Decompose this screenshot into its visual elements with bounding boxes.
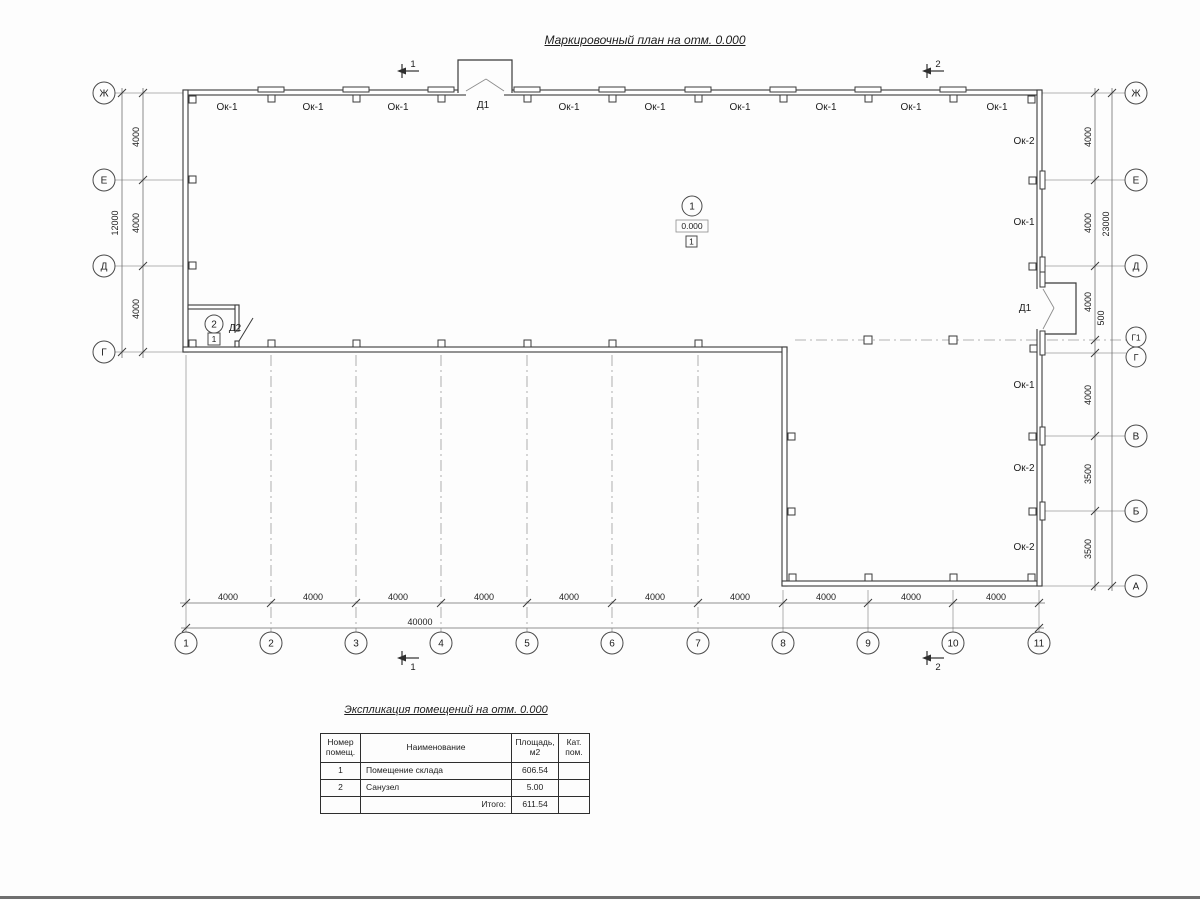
window-label: Ок-1 [387, 102, 408, 113]
axis-label: 11 [1034, 639, 1045, 650]
dim-label: 4000 [730, 592, 750, 602]
cell-area: 606.54 [512, 763, 559, 780]
total-area: 611.54 [512, 797, 559, 814]
axis-label: Г [101, 348, 107, 359]
axis-label: В [1133, 432, 1140, 443]
table-header-row: Номер помещ. Наименование Площадь, м2 Ка… [321, 734, 590, 763]
col-header-area: Площадь, м2 [512, 734, 559, 763]
room-marker-storage: 1 0.000 1 [676, 196, 708, 247]
cell-empty [559, 797, 590, 814]
axis-label: Ж [99, 89, 109, 100]
section-number: 1 [410, 662, 415, 673]
cell-number: 2 [321, 780, 361, 797]
dim-label: 4000 [1083, 385, 1093, 405]
axis-label: Б [1133, 507, 1140, 518]
dim-label: 4000 [131, 299, 141, 319]
section-mark-1-top [397, 64, 419, 78]
dimension-labels: 4000 4000 4000 12000 4000 4000 4000 500 … [110, 127, 1111, 627]
room-schedule-table: Номер помещ. Наименование Площадь, м2 Ка… [320, 733, 590, 814]
dim-label: 4000 [901, 592, 921, 602]
dim-label: 4000 [474, 592, 494, 602]
col-header-name: Наименование [361, 734, 512, 763]
axis-label: Г1 [1131, 333, 1141, 343]
axis-label: 8 [780, 639, 786, 650]
dim-label: 4000 [131, 127, 141, 147]
dim-label: 3500 [1083, 539, 1093, 559]
door-openings [466, 89, 1043, 329]
table-total-row: Итого: 611.54 [321, 797, 590, 814]
door-label: Д1 [477, 100, 490, 111]
dim-label-total: 40000 [407, 617, 432, 627]
dim-label-total: 23000 [1101, 211, 1111, 236]
dim-label: 4000 [131, 213, 141, 233]
window-label: Ок-1 [1013, 380, 1034, 391]
axis-label: 9 [865, 639, 871, 650]
table-title: Экспликация помещений на отм. 0.000 [318, 704, 574, 716]
door-label: Д1 [1019, 303, 1032, 314]
axis-label: 1 [183, 639, 189, 650]
dim-label: 4000 [218, 592, 238, 602]
axis-grid-lines [115, 93, 1126, 632]
dim-label: 4000 [816, 592, 836, 602]
dim-label-total: 12000 [110, 210, 120, 235]
axis-label: 7 [695, 639, 701, 650]
window-label: Ок-2 [1013, 136, 1034, 147]
section-mark-2-top [922, 64, 944, 78]
room-marker-wc: 2 1 [205, 315, 223, 345]
cell-empty [321, 797, 361, 814]
axis-label: 6 [609, 639, 615, 650]
room-number: 1 [689, 202, 695, 213]
section-marks [397, 64, 944, 665]
section-number: 1 [410, 59, 415, 70]
cell-name: Помещение склада [361, 763, 512, 780]
window-label: Ок-1 [644, 102, 665, 113]
total-label: Итого: [361, 797, 512, 814]
window-bottom-edge [0, 896, 1200, 899]
table-row: 2 Санузел 5.00 [321, 780, 590, 797]
col-header-cat: Кат. пом. [559, 734, 590, 763]
cell-number: 1 [321, 763, 361, 780]
window-label: Ок-2 [1013, 463, 1034, 474]
dimension-lines [122, 88, 1112, 628]
axis-label: 3 [353, 639, 359, 650]
entrance-door-right [1041, 283, 1076, 334]
window-label: Ок-1 [729, 102, 750, 113]
col-header-number: Номер помещ. [321, 734, 361, 763]
axis-label: 5 [524, 639, 530, 650]
page-title: Маркировочный план на отм. 0.000 [445, 33, 845, 47]
room-level: 0.000 [681, 221, 703, 231]
window-label: Ок-1 [302, 102, 323, 113]
room-category: 1 [689, 237, 694, 247]
window-label: Ок-1 [900, 102, 921, 113]
section-number: 2 [935, 59, 940, 70]
cell-cat [559, 780, 590, 797]
floor-plan-canvas: 4000 4000 4000 12000 4000 4000 4000 500 … [0, 0, 1200, 900]
cell-name: Санузел [361, 780, 512, 797]
window-label: Ок-2 [1013, 542, 1034, 553]
dim-label: 4000 [1083, 292, 1093, 312]
dimension-ticks [118, 89, 1116, 632]
axis-label: 4 [438, 639, 444, 650]
window-label: Ок-1 [558, 102, 579, 113]
axis-label: Г [1134, 353, 1139, 363]
exterior-walls [183, 90, 1042, 586]
axis-label: Д [101, 262, 108, 273]
dim-label: 4000 [388, 592, 408, 602]
window-label: Ок-1 [216, 102, 237, 113]
window-label: Ок-1 [986, 102, 1007, 113]
section-mark-1-bottom [397, 651, 419, 665]
section-number: 2 [935, 662, 940, 673]
entrance-door-top [458, 60, 512, 93]
cell-area: 5.00 [512, 780, 559, 797]
dim-label: 4000 [1083, 127, 1093, 147]
dim-label: 3500 [1083, 464, 1093, 484]
axis-label: Е [101, 176, 108, 187]
dim-label: 500 [1096, 310, 1106, 325]
room-category: 1 [212, 334, 217, 344]
dim-label: 4000 [559, 592, 579, 602]
axis-label: Д [1133, 262, 1140, 273]
door-label: Д2 [229, 323, 242, 334]
axis-label: 10 [947, 639, 959, 650]
dim-label: 4000 [1083, 213, 1093, 233]
window-label: Ок-1 [815, 102, 836, 113]
axis-label: Ж [1131, 89, 1141, 100]
cell-cat [559, 763, 590, 780]
axis-bubbles: Ж Е Д Г Ж Е Д Г1 Г В Б А 1 2 3 4 5 6 7 8 [93, 82, 1147, 654]
window-label: Ок-1 [1013, 217, 1034, 228]
axis-label: 2 [268, 639, 274, 650]
axis-label: Е [1133, 176, 1140, 187]
axis-label: А [1133, 582, 1140, 593]
dim-label: 4000 [986, 592, 1006, 602]
drawing-sheet: Маркировочный план на отм. 0.000 [0, 0, 1200, 900]
room-number: 2 [211, 320, 217, 331]
wall-pilasters [189, 87, 1045, 581]
window-labels: Ок-1 Ок-1 Ок-1 Ок-1 Ок-1 Ок-1 Ок-1 Ок-1 … [216, 102, 1034, 553]
dim-label: 4000 [645, 592, 665, 602]
section-mark-2-bottom [922, 651, 944, 665]
table-row: 1 Помещение склада 606.54 [321, 763, 590, 780]
dim-label: 4000 [303, 592, 323, 602]
